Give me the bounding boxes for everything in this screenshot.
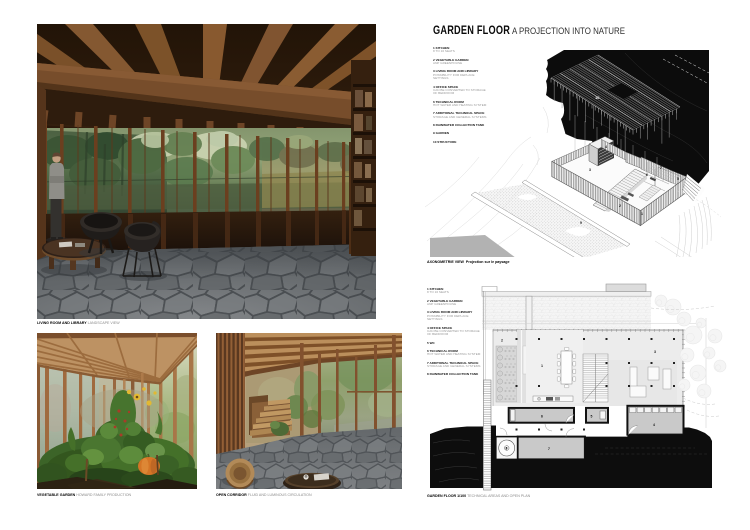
svg-text:3: 3	[589, 168, 591, 172]
svg-text:7: 7	[660, 166, 662, 170]
svg-text:1: 1	[641, 212, 643, 216]
svg-text:5: 5	[591, 415, 593, 419]
svg-text:9: 9	[580, 221, 582, 225]
svg-text:10: 10	[595, 95, 600, 100]
svg-text:1: 1	[541, 364, 543, 368]
svg-text:4: 4	[653, 423, 655, 427]
svg-text:3: 3	[654, 350, 656, 354]
svg-text:2: 2	[501, 339, 503, 343]
svg-text:2: 2	[619, 204, 621, 208]
svg-text:4: 4	[605, 145, 607, 149]
svg-text:6: 6	[646, 173, 648, 177]
svg-text:8: 8	[506, 446, 508, 450]
svg-text:7: 7	[548, 447, 550, 451]
svg-text:6: 6	[541, 415, 543, 419]
svg-text:5: 5	[677, 177, 679, 181]
